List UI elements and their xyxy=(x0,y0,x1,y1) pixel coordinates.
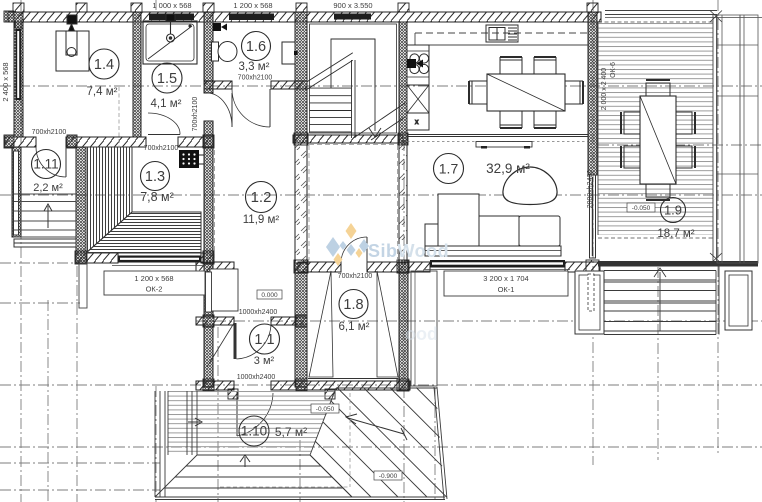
svg-text:7,8 м²: 7,8 м² xyxy=(140,190,174,204)
svg-text:1 000 х 568: 1 000 х 568 xyxy=(152,1,191,10)
svg-text:1.9: 1.9 xyxy=(664,203,682,218)
svg-text:-0.050: -0.050 xyxy=(632,205,651,212)
svg-text:18,7 м²: 18,7 м² xyxy=(657,228,694,240)
svg-text:1.6: 1.6 xyxy=(246,39,266,55)
svg-text:2 000 х 2 400: 2 000 х 2 400 xyxy=(601,68,608,111)
svg-text:1000хh2400: 1000хh2400 xyxy=(237,374,276,381)
svg-text:1 200 х 568: 1 200 х 568 xyxy=(134,274,173,283)
svg-text:1.4: 1.4 xyxy=(94,57,114,73)
svg-text:32,9 м²: 32,9 м² xyxy=(486,161,530,176)
svg-text:1000хh2400: 1000хh2400 xyxy=(239,309,278,316)
svg-text:6,1 м²: 6,1 м² xyxy=(339,321,370,333)
svg-text:700хh2100: 700хh2100 xyxy=(238,75,273,82)
svg-text:SibWood: SibWood xyxy=(368,241,449,261)
svg-text:3 200 х 1 704: 3 200 х 1 704 xyxy=(483,274,528,283)
svg-text:11,9 м²: 11,9 м² xyxy=(243,214,280,226)
svg-text:1.1: 1.1 xyxy=(254,332,274,348)
svg-text:2 400 х 568: 2 400 х 568 xyxy=(1,62,10,101)
svg-text:3,3 м²: 3,3 м² xyxy=(239,61,270,73)
svg-text:2000хh2400: 2000хh2400 xyxy=(587,170,594,209)
svg-text:1.10: 1.10 xyxy=(241,424,267,439)
svg-text:5,7 м²: 5,7 м² xyxy=(275,425,307,439)
svg-text:ОК-6: ОК-6 xyxy=(610,62,617,78)
svg-text:1.5: 1.5 xyxy=(157,71,177,87)
svg-text:0.000: 0.000 xyxy=(261,292,278,299)
svg-text:700хh2100: 700хh2100 xyxy=(144,145,179,152)
svg-text:1.8: 1.8 xyxy=(343,297,363,313)
svg-text:-0.900: -0.900 xyxy=(379,473,398,480)
svg-text:900 х 3.550: 900 х 3.550 xyxy=(333,1,372,10)
svg-text:ood: ood xyxy=(405,324,438,344)
svg-text:1.2: 1.2 xyxy=(251,189,272,206)
svg-text:700хh2100: 700хh2100 xyxy=(32,129,67,136)
svg-text:1 200 х 568: 1 200 х 568 xyxy=(233,1,272,10)
svg-text:-0.050: -0.050 xyxy=(316,406,335,413)
svg-text:x: x xyxy=(415,119,419,126)
svg-text:3 м²: 3 м² xyxy=(254,355,275,367)
svg-text:ОК-1: ОК-1 xyxy=(498,285,515,294)
svg-text:4,1 м²: 4,1 м² xyxy=(151,98,182,110)
svg-text:700хh2100: 700хh2100 xyxy=(338,273,373,280)
svg-text:ОК-2: ОК-2 xyxy=(146,285,163,294)
svg-text:7,4 м²: 7,4 м² xyxy=(87,86,118,98)
svg-text:700хh2100: 700хh2100 xyxy=(192,97,199,132)
svg-text:1.11: 1.11 xyxy=(33,157,58,172)
svg-text:1.3: 1.3 xyxy=(145,169,165,185)
svg-text:2,2 м²: 2,2 м² xyxy=(33,182,63,194)
svg-text:1.7: 1.7 xyxy=(439,161,459,177)
